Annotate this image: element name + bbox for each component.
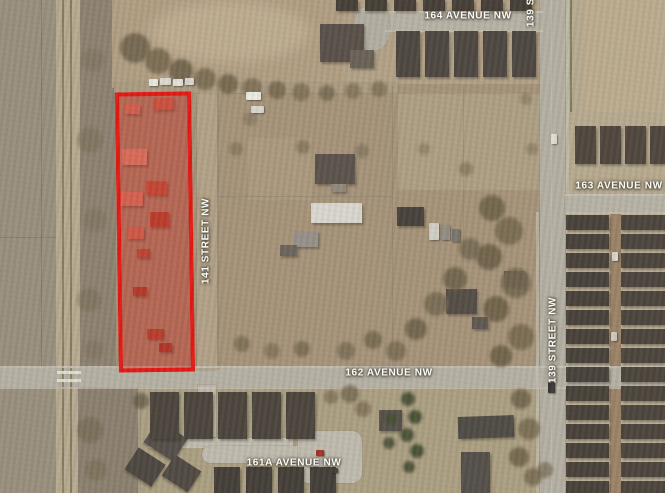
townhouse-roof bbox=[566, 348, 609, 363]
truck bbox=[452, 229, 460, 242]
lot-line bbox=[218, 88, 219, 370]
tree bbox=[371, 81, 387, 97]
house-roof bbox=[425, 31, 449, 77]
truck bbox=[429, 223, 439, 240]
curb bbox=[565, 194, 665, 196]
townhouse-roof bbox=[621, 329, 665, 344]
tree bbox=[520, 93, 532, 105]
tree bbox=[526, 143, 538, 155]
trailer bbox=[149, 79, 158, 86]
curb bbox=[565, 212, 665, 214]
tree bbox=[264, 343, 280, 359]
tree bbox=[400, 428, 414, 442]
tree bbox=[385, 413, 397, 425]
tree bbox=[84, 340, 104, 360]
house-roof bbox=[483, 31, 507, 77]
highlighted-parcel-outline bbox=[115, 91, 195, 372]
tree bbox=[145, 48, 171, 74]
tree bbox=[243, 112, 257, 126]
tree bbox=[424, 292, 448, 316]
tree bbox=[501, 268, 531, 298]
townhouse-roof bbox=[566, 329, 609, 344]
tree bbox=[537, 462, 553, 478]
tree bbox=[459, 162, 473, 176]
acreage-house bbox=[397, 207, 424, 226]
lot-line bbox=[392, 86, 393, 370]
patio bbox=[331, 184, 346, 192]
tree bbox=[234, 336, 250, 352]
tree bbox=[483, 296, 509, 322]
house-roof bbox=[365, 0, 387, 11]
townhouse-roof bbox=[566, 481, 609, 493]
townhouse-roof bbox=[566, 234, 609, 249]
tree bbox=[508, 324, 534, 350]
tree bbox=[345, 83, 361, 99]
townhouse-roof bbox=[566, 272, 609, 287]
tree bbox=[479, 195, 505, 221]
acreage-house bbox=[446, 289, 477, 314]
tree bbox=[405, 318, 427, 340]
tree bbox=[410, 444, 424, 458]
house-roof bbox=[246, 467, 272, 493]
townhouse-roof bbox=[566, 215, 609, 230]
tree bbox=[518, 418, 540, 440]
house-roof bbox=[336, 0, 358, 11]
townhouse-roof bbox=[621, 215, 665, 230]
townhouse-roof bbox=[621, 310, 665, 325]
townhouse-roof bbox=[566, 386, 609, 401]
townhouse-roof bbox=[621, 253, 665, 268]
townhouse-roof bbox=[621, 272, 665, 287]
car bbox=[612, 252, 618, 261]
white-shed bbox=[311, 203, 362, 223]
truck bbox=[441, 225, 450, 240]
shed bbox=[294, 231, 318, 247]
tree bbox=[85, 459, 107, 481]
tree bbox=[133, 393, 149, 409]
tree bbox=[218, 74, 238, 94]
tree bbox=[401, 392, 415, 406]
shed bbox=[280, 245, 297, 256]
tree bbox=[229, 142, 243, 156]
townhouse-roof bbox=[621, 348, 665, 363]
townhouse-roof bbox=[566, 253, 609, 268]
tree bbox=[511, 389, 531, 409]
street-label-139-street-top: 139 STREET NW bbox=[526, 0, 537, 27]
car bbox=[331, 468, 338, 473]
long-shed bbox=[458, 415, 515, 439]
townhouse-roof bbox=[621, 291, 665, 306]
fence-line bbox=[0, 237, 56, 238]
tree bbox=[337, 342, 355, 360]
aerial-imagery-layer bbox=[0, 0, 665, 493]
tree bbox=[296, 140, 310, 154]
tree bbox=[319, 85, 335, 101]
house-roof bbox=[396, 31, 420, 77]
townhouse-roof bbox=[621, 405, 665, 420]
road-seam bbox=[551, 0, 552, 493]
lot-line bbox=[218, 196, 393, 197]
hedge-line bbox=[570, 0, 572, 112]
townhouse-roof bbox=[621, 234, 665, 249]
house-roof bbox=[150, 392, 179, 439]
tree bbox=[355, 144, 369, 158]
townhouse-roof bbox=[621, 462, 665, 477]
tree bbox=[341, 385, 359, 403]
trailer bbox=[160, 78, 171, 85]
shed bbox=[472, 317, 488, 329]
car bbox=[551, 134, 557, 144]
tree bbox=[408, 410, 422, 424]
tree bbox=[459, 238, 481, 260]
tree bbox=[324, 390, 338, 404]
tree bbox=[443, 267, 467, 291]
tree bbox=[77, 417, 103, 443]
house-roof bbox=[252, 392, 281, 439]
tree bbox=[81, 48, 105, 72]
tree bbox=[386, 341, 406, 361]
tree bbox=[403, 461, 415, 473]
house-roof bbox=[184, 392, 213, 439]
tree bbox=[509, 447, 529, 467]
townhouse-roof bbox=[621, 443, 665, 458]
car bbox=[548, 382, 555, 393]
tree bbox=[77, 288, 101, 312]
townhouse-roof bbox=[566, 367, 609, 382]
townhouse-roof bbox=[621, 424, 665, 439]
acreage-house bbox=[315, 154, 355, 184]
house-roof bbox=[512, 31, 536, 77]
street-label-139-street: 139 STREET NW bbox=[548, 297, 559, 383]
townhouse-roof bbox=[566, 424, 609, 439]
red-car bbox=[316, 450, 324, 456]
house-roof bbox=[452, 0, 474, 11]
tree bbox=[364, 331, 382, 349]
sidewalk bbox=[536, 212, 539, 493]
tree bbox=[77, 127, 103, 153]
aerial-map: 164 AVENUE NW 163 AVENUE NW 162 AVENUE N… bbox=[0, 0, 665, 493]
house-roof bbox=[481, 0, 503, 11]
tree bbox=[268, 81, 286, 99]
rail-crossing-mark bbox=[57, 379, 81, 382]
rail-crossing-mark bbox=[57, 371, 81, 374]
house-roof bbox=[454, 31, 478, 77]
house-roof bbox=[286, 392, 315, 439]
railway-corridor bbox=[56, 0, 80, 493]
townhouse-roof bbox=[566, 462, 609, 477]
house-roof bbox=[625, 126, 646, 164]
field-patch bbox=[150, 2, 310, 62]
lawn bbox=[398, 94, 540, 190]
house-roof bbox=[423, 0, 445, 11]
house-roof bbox=[650, 126, 665, 164]
townhouse-roof bbox=[621, 481, 665, 493]
tree bbox=[292, 83, 310, 101]
townhouse-roof bbox=[621, 367, 665, 382]
townhouse-roof bbox=[566, 310, 609, 325]
tree bbox=[194, 68, 216, 90]
tree bbox=[490, 345, 512, 367]
sidewalk bbox=[566, 0, 569, 196]
house-roof bbox=[278, 467, 304, 493]
shed bbox=[461, 452, 490, 493]
house-roof bbox=[214, 467, 240, 493]
townhouse-roof bbox=[566, 443, 609, 458]
house-roof bbox=[218, 392, 247, 439]
tree bbox=[83, 208, 107, 232]
townhouse-roof bbox=[566, 291, 609, 306]
street-label-163-avenue: 163 AVENUE NW bbox=[575, 181, 662, 192]
tree bbox=[418, 143, 430, 155]
house-roof bbox=[600, 126, 621, 164]
trailer bbox=[173, 79, 183, 86]
tree bbox=[383, 437, 395, 449]
townhouse-roof bbox=[566, 405, 609, 420]
street-label-164-avenue: 164 AVENUE NW bbox=[424, 11, 511, 22]
rail-track bbox=[70, 0, 72, 493]
road-139-street bbox=[540, 0, 565, 493]
street-label-141-street: 141 STREET NW bbox=[201, 198, 212, 284]
street-label-161a-avenue: 161A AVENUE NW bbox=[247, 458, 342, 469]
rail-track bbox=[62, 0, 64, 493]
house-roof bbox=[394, 0, 416, 11]
car bbox=[611, 332, 617, 341]
estate-wing bbox=[350, 50, 374, 68]
tree bbox=[355, 401, 371, 417]
truck bbox=[251, 106, 264, 113]
road-163-avenue bbox=[565, 196, 665, 212]
tree bbox=[495, 217, 523, 245]
fence-line bbox=[41, 0, 42, 368]
street-label-162-avenue: 162 AVENUE NW bbox=[345, 368, 432, 379]
field-ne-corner bbox=[584, 0, 665, 112]
trailer bbox=[185, 78, 194, 85]
house-roof bbox=[575, 126, 596, 164]
townhouse-roof bbox=[621, 386, 665, 401]
truck bbox=[246, 92, 261, 100]
tree bbox=[294, 341, 310, 357]
